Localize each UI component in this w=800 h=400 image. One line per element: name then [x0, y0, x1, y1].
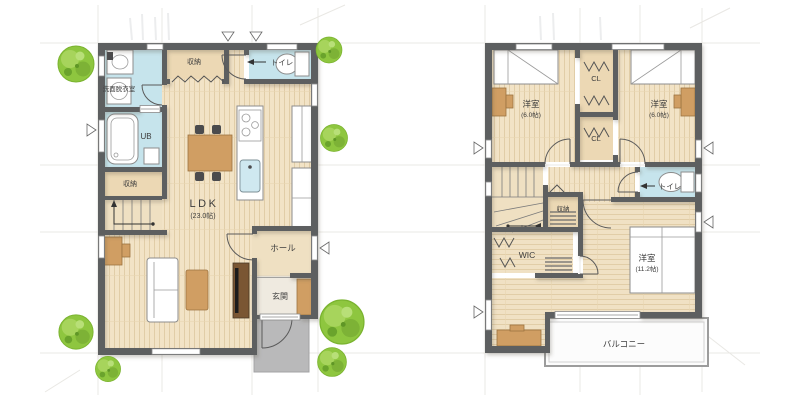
window: [312, 236, 318, 260]
label-bedroom-main-size: (11.2帖): [636, 264, 659, 273]
dining-chair: [212, 172, 221, 181]
desk-chair: [674, 95, 681, 108]
window: [147, 44, 163, 50]
label-hall: ホール: [270, 243, 296, 253]
window: [99, 56, 105, 76]
window: [486, 300, 492, 330]
desk-left: [492, 88, 506, 116]
label-bedroom-left: 洋室: [522, 99, 540, 109]
dining-chair: [195, 125, 204, 134]
window: [152, 349, 200, 355]
label-toilet-1f: トイレ: [271, 58, 294, 67]
label-closet-lower: CL: [591, 134, 601, 143]
tree-icon: [316, 37, 342, 63]
toilet-tank-2f: [681, 172, 694, 192]
window: [99, 120, 105, 152]
washbasin-tap: [107, 52, 113, 60]
room-hall: [252, 231, 311, 276]
dining-chair: [212, 125, 221, 134]
bed-right: [631, 50, 695, 84]
toilet-tank-1f: [295, 52, 309, 76]
vent-flag: [222, 32, 234, 41]
label-toilet-2f: トイレ: [659, 182, 682, 191]
label-bedroom-right-size: (6.0帖): [649, 110, 669, 119]
label-wic: WIC: [519, 250, 536, 260]
floor-plan-canvas: 洗面脱衣室 収納 トイレ UB 収納 LDK (23.0帖) ホール 玄関: [0, 0, 800, 400]
label-storage-mid: 収納: [123, 179, 137, 188]
dining-table: [188, 135, 232, 171]
window: [696, 140, 702, 158]
second-floor-plan: 洋室 (6.0帖) 洋室 (6.0帖) CL CL 収納 トイレ WIC 洋室 …: [474, 43, 713, 366]
bed-left: [494, 50, 558, 84]
label-bedroom-right: 洋室: [650, 99, 668, 109]
tree-icon: [321, 125, 348, 152]
tree-icon: [59, 315, 93, 349]
window: [486, 140, 492, 158]
label-balcony: バルコニー: [603, 339, 645, 349]
label-bedroom-left-size: (6.0帖): [521, 110, 541, 119]
label-washroom: 洗面脱衣室: [103, 84, 136, 93]
tv-screen: [235, 268, 239, 313]
label-bedroom-main: 洋室: [638, 253, 656, 263]
desk-chair-1f: [122, 244, 130, 257]
vent-flag: [87, 124, 96, 136]
floor-plans-drawing: 洗面脱衣室 収納 トイレ UB 収納 LDK (23.0帖) ホール 玄関: [0, 0, 800, 400]
kitchen-sink: [240, 160, 260, 192]
label-ldk-size: (23.0帖): [190, 211, 215, 220]
label-closet-upper: CL: [591, 74, 601, 83]
label-storage-2f: 収納: [557, 204, 570, 213]
vent-flag: [320, 242, 329, 254]
window: [516, 44, 552, 50]
window: [267, 44, 297, 50]
label-storage-top: 収納: [187, 57, 201, 66]
room-stairs-2f: [492, 167, 543, 232]
desk-bottom: [497, 330, 541, 346]
window: [99, 236, 105, 258]
vent-flag: [474, 142, 483, 154]
vent-flag: [704, 216, 713, 228]
first-floor-rooms: [105, 50, 311, 372]
bath-counter: [144, 148, 159, 164]
window: [696, 212, 702, 232]
vent-flag: [474, 306, 483, 318]
tree-icon: [58, 46, 94, 82]
room-bedroom-main-l: [492, 278, 583, 312]
tree-icon: [320, 300, 364, 344]
window: [312, 84, 318, 106]
tree-icon: [95, 356, 120, 381]
kitchen-cupboard: [292, 106, 313, 162]
shoe-cabinet: [297, 279, 313, 315]
desk-drawer: [510, 325, 524, 331]
label-bath: UB: [140, 132, 151, 141]
dining-chair: [195, 172, 204, 181]
desk-chair: [506, 95, 513, 108]
window: [612, 44, 664, 50]
coffee-table: [186, 270, 208, 310]
label-entrance: 玄関: [272, 291, 288, 301]
vent-flag: [704, 142, 713, 154]
window: [696, 174, 702, 192]
tree-icon: [318, 348, 347, 377]
window: [486, 182, 492, 196]
label-ldk: LDK: [190, 198, 219, 210]
desk-right: [681, 88, 695, 116]
toilet-nook: [229, 50, 244, 79]
